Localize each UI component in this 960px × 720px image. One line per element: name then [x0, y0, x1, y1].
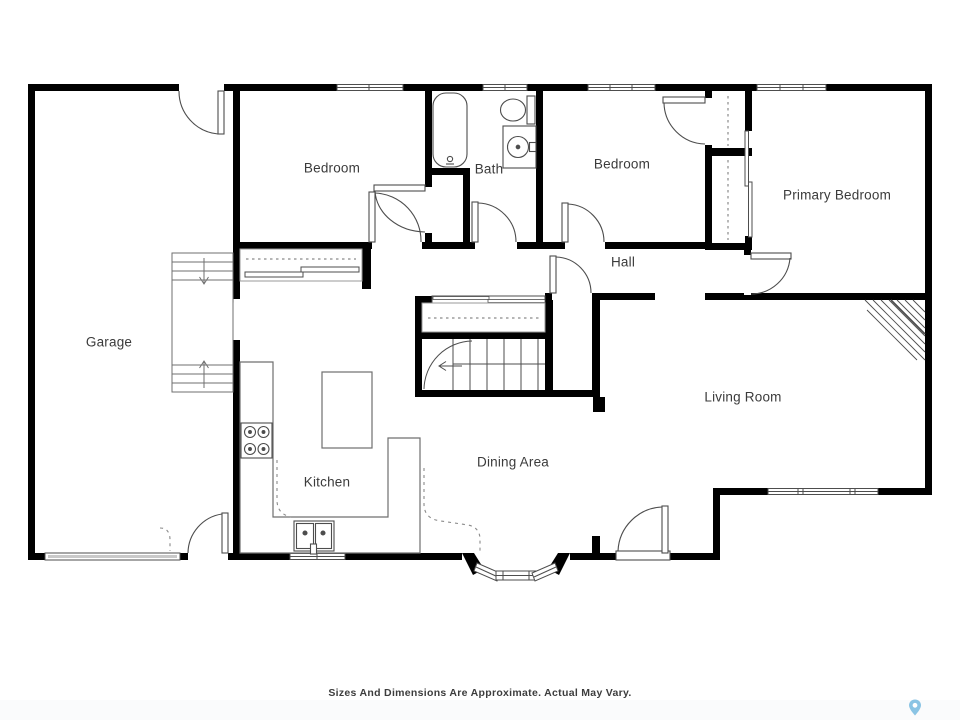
- location-pin-icon: [906, 698, 924, 720]
- floor-plan: Garage Bedroom Bath Bedroom Primary Bedr…: [0, 0, 960, 720]
- room-label-living-room: Living Room: [704, 390, 781, 405]
- bedroom2-door: [562, 203, 605, 249]
- kitchen-island: [322, 372, 372, 448]
- stairs-garage: [172, 253, 233, 392]
- floor-plan-drawing: [0, 0, 960, 720]
- bedroom2-window: [588, 85, 655, 91]
- footer-band: [0, 700, 960, 720]
- garage-vehicle-door: [45, 553, 180, 560]
- garage-rear-door: [179, 84, 224, 134]
- kitchen-window: [290, 554, 345, 560]
- bay-window: [474, 563, 558, 581]
- toilet: [501, 96, 536, 124]
- hall-stairs-door: [550, 256, 592, 300]
- room-label-kitchen: Kitchen: [304, 475, 350, 490]
- room-label-bath: Bath: [475, 162, 504, 177]
- room-label-dining-area: Dining Area: [477, 455, 549, 470]
- stairs-main: [424, 339, 545, 390]
- room-label-bedroom-2: Bedroom: [594, 157, 650, 172]
- room-label-hall: Hall: [611, 255, 635, 270]
- room-label-primary-bedroom: Primary Bedroom: [783, 188, 891, 203]
- bedroom2-closet-door: [663, 97, 712, 145]
- bedroom1-window: [337, 85, 403, 91]
- stove: [241, 423, 272, 458]
- kitchen-sink: [294, 521, 334, 554]
- bathtub: [433, 93, 467, 167]
- windows: [290, 85, 878, 582]
- fireplace-hatch: [865, 300, 925, 360]
- bath-door: [472, 202, 517, 249]
- primary-bedroom-door: [744, 253, 791, 295]
- hall-closet: [240, 249, 362, 281]
- bath-vanity-sink: [503, 126, 536, 168]
- bedroom1-closet-door: [374, 185, 432, 233]
- stair-closet: [422, 296, 545, 332]
- stairs-direction-arrow: [439, 362, 462, 371]
- disclaimer-text: Sizes And Dimensions Are Approximate. Ac…: [328, 687, 631, 699]
- primary-bedroom-window: [757, 85, 826, 91]
- patio-door: [616, 506, 670, 560]
- garage-bottom-door: [188, 513, 228, 560]
- bath-fixtures: [433, 93, 536, 168]
- bath-window: [483, 85, 527, 91]
- room-label-bedroom-1: Bedroom: [304, 161, 360, 176]
- living-room-window: [768, 489, 878, 495]
- room-label-garage: Garage: [86, 335, 132, 350]
- closets: [240, 96, 752, 332]
